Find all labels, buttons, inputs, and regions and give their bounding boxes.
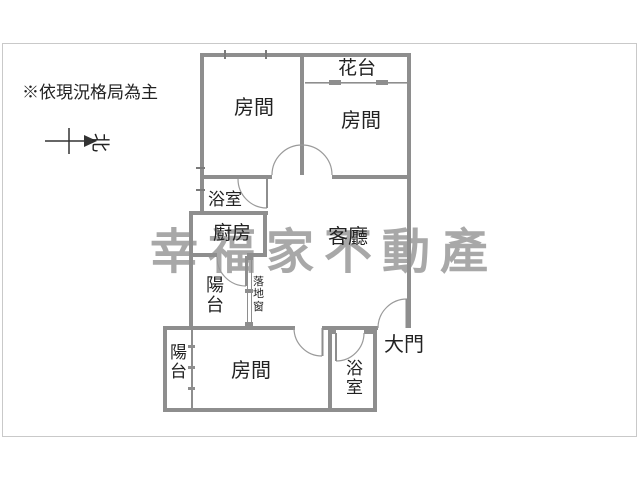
main-door-arc — [378, 299, 407, 328]
room-label-bedroom-top-left: 房間 — [234, 98, 274, 120]
floorplan-drawing — [0, 0, 640, 480]
window-tick — [196, 189, 205, 191]
bathroom-lower-door-arc — [336, 333, 364, 361]
room-label-kitchen: 廚房 — [213, 224, 251, 245]
room-label-flower-terrace: 花台 — [338, 59, 376, 80]
window-tick — [224, 50, 226, 59]
room-label-balcony-upper: 陽台 — [206, 275, 225, 315]
room-label-bathroom-lower: 浴室 — [346, 359, 364, 397]
room-label-bathroom-upper: 浴室 — [208, 191, 242, 209]
label-floor-to-ceiling-window: 落地窗 — [253, 276, 265, 313]
room-label-living-room: 客廳 — [328, 227, 368, 249]
room-label-balcony-lower: 陽台 — [170, 343, 188, 381]
north-label: 北 — [88, 133, 115, 152]
floorplan-canvas: 幸福家不動產 — [0, 0, 640, 480]
room-label-bedroom-top-right: 房間 — [341, 111, 381, 133]
walls-layer — [163, 53, 411, 412]
bathroom-upper-door-arc — [238, 179, 267, 208]
label-main-entrance: 大門 — [384, 335, 424, 357]
disclaimer-note: ※依現況格局為主 — [22, 84, 158, 102]
room-label-bedroom-lower: 房間 — [231, 361, 271, 383]
flower-terrace-window — [305, 82, 407, 84]
bedroom-lower-door-arc — [294, 328, 322, 356]
window-tick — [265, 50, 267, 59]
window-tick — [196, 167, 205, 169]
